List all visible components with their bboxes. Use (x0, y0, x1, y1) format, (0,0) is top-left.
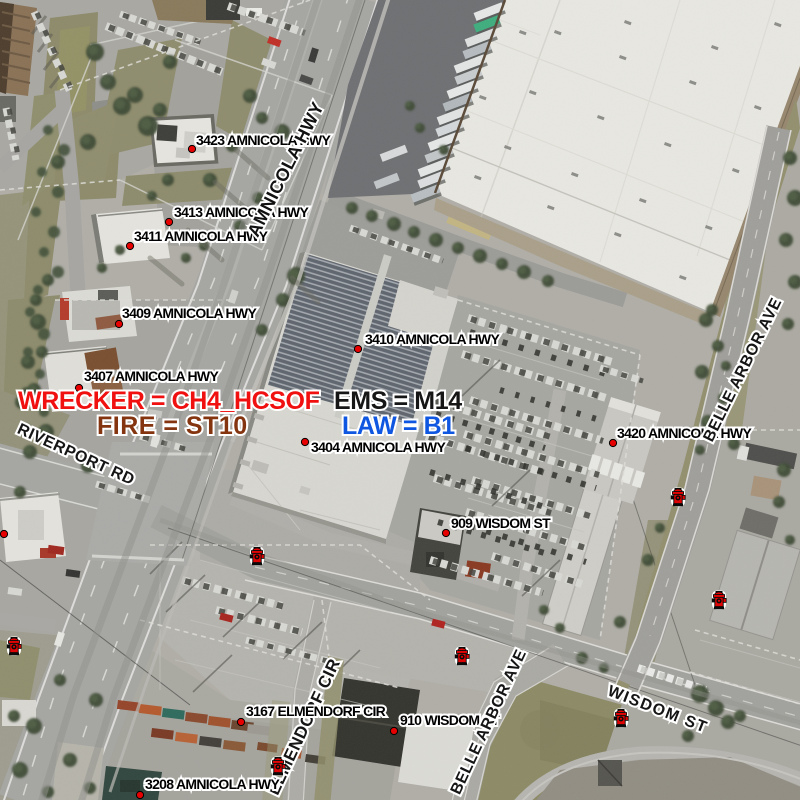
svg-text:3409 AMNICOLA HWY: 3409 AMNICOLA HWY (122, 305, 257, 321)
svg-text:3208 AMNICOLA HWY: 3208 AMNICOLA HWY (145, 776, 280, 792)
svg-text:909 WISDOM ST: 909 WISDOM ST (451, 515, 551, 531)
svg-text:3410 AMNICOLA HWY: 3410 AMNICOLA HWY (365, 331, 500, 347)
svg-text:3167 ELMENDORF CIR: 3167 ELMENDORF CIR (246, 703, 386, 719)
svg-text:EMS = M14: EMS = M14 (334, 387, 462, 415)
svg-text:3407 AMNICOLA HWY: 3407 AMNICOLA HWY (84, 368, 219, 384)
svg-text:WRECKER = CH4_HCSOF: WRECKER = CH4_HCSOF (18, 387, 320, 415)
svg-text:3404 AMNICOLA HWY: 3404 AMNICOLA HWY (311, 439, 446, 455)
svg-text:FIRE = ST10: FIRE = ST10 (97, 412, 248, 440)
svg-text:3420 AMNICOLA HWY: 3420 AMNICOLA HWY (617, 425, 752, 441)
svg-text:3413 AMNICOLA HWY: 3413 AMNICOLA HWY (174, 204, 309, 220)
svg-text:LAW = B1: LAW = B1 (342, 412, 455, 440)
